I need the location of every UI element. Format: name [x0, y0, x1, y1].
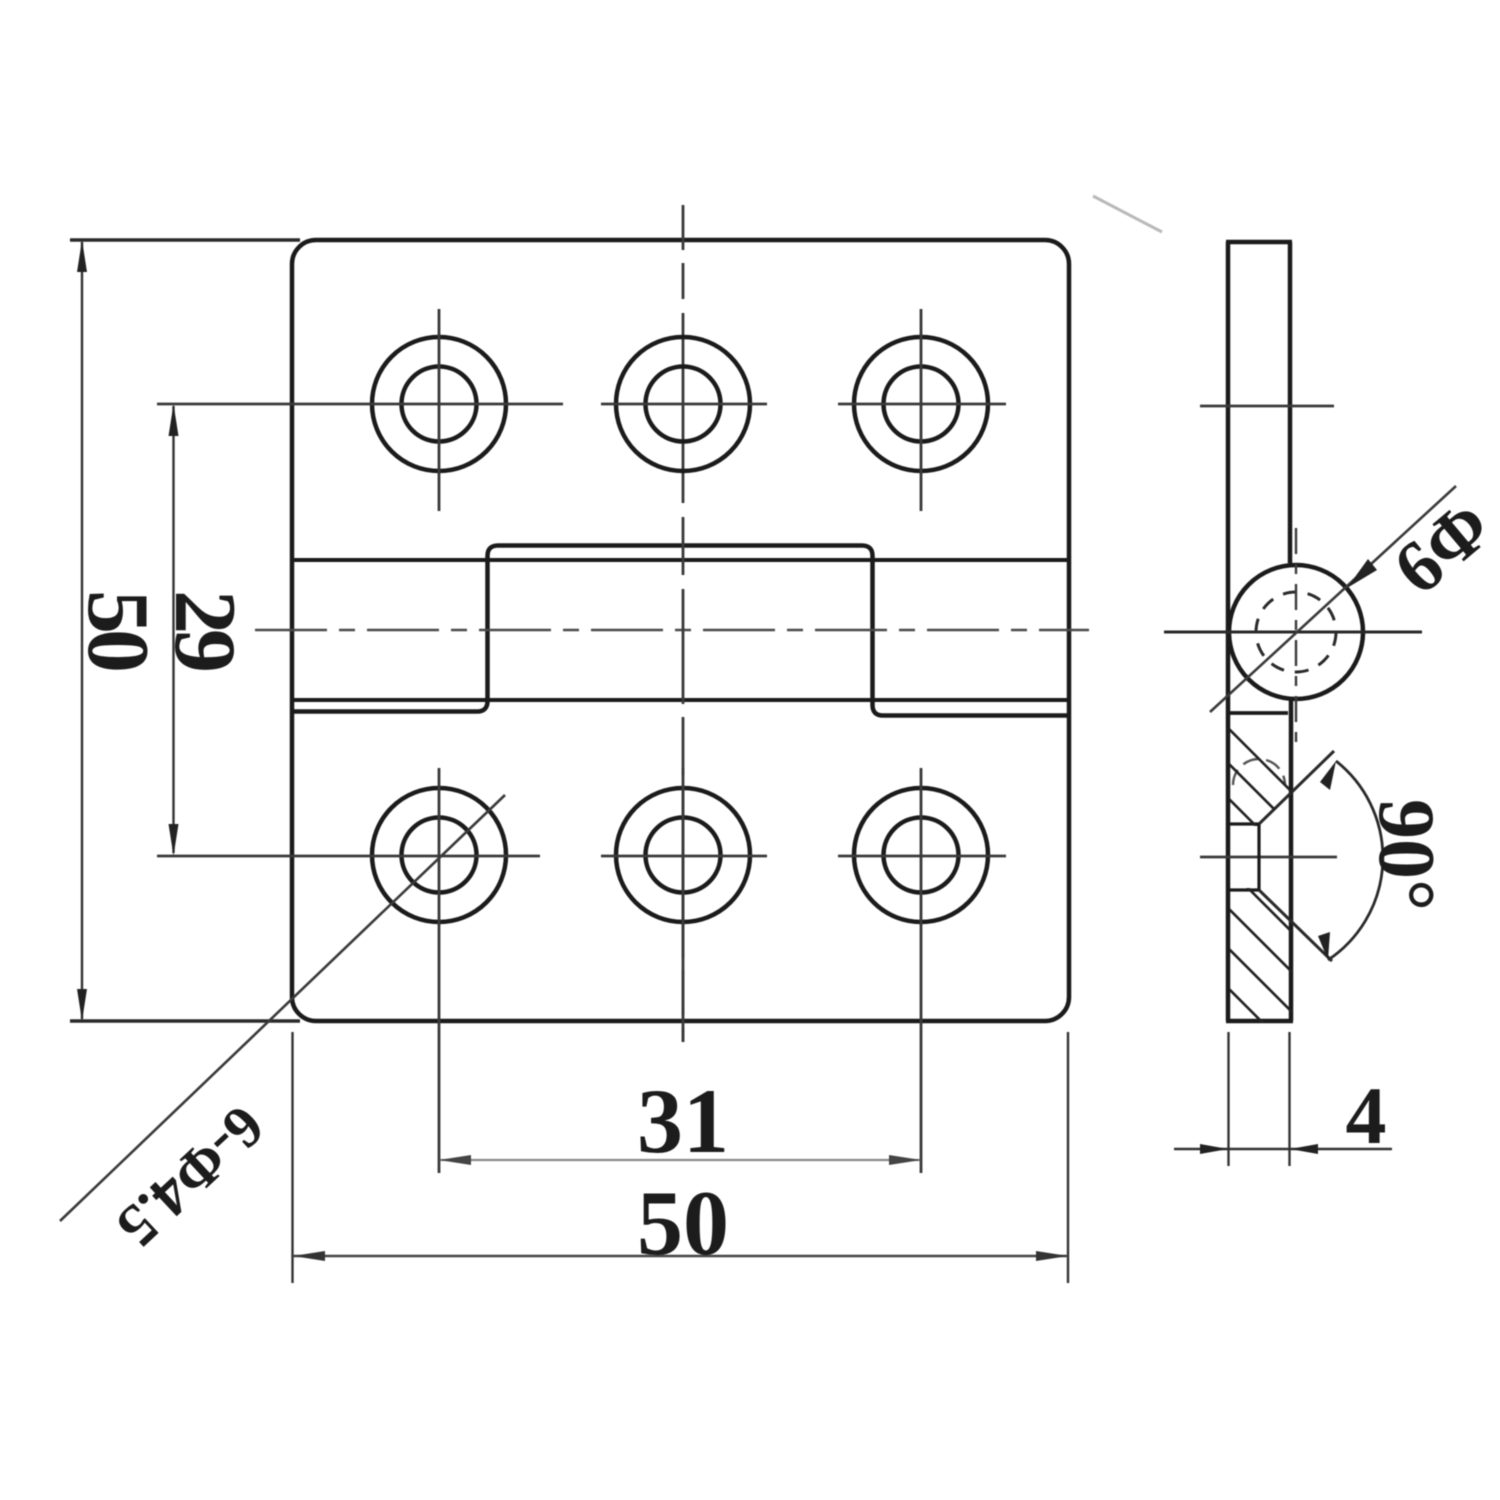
svg-text:31: 31: [637, 1070, 729, 1172]
svg-text:29: 29: [156, 590, 253, 670]
svg-text:4: 4: [1346, 1070, 1387, 1161]
svg-text:6-Φ4.5: 6-Φ4.5: [104, 1093, 277, 1260]
svg-text:50: 50: [69, 590, 166, 670]
svg-text:6Φ: 6Φ: [1379, 485, 1500, 611]
svg-text:90°: 90°: [1362, 799, 1450, 911]
svg-text:50: 50: [637, 1172, 729, 1274]
